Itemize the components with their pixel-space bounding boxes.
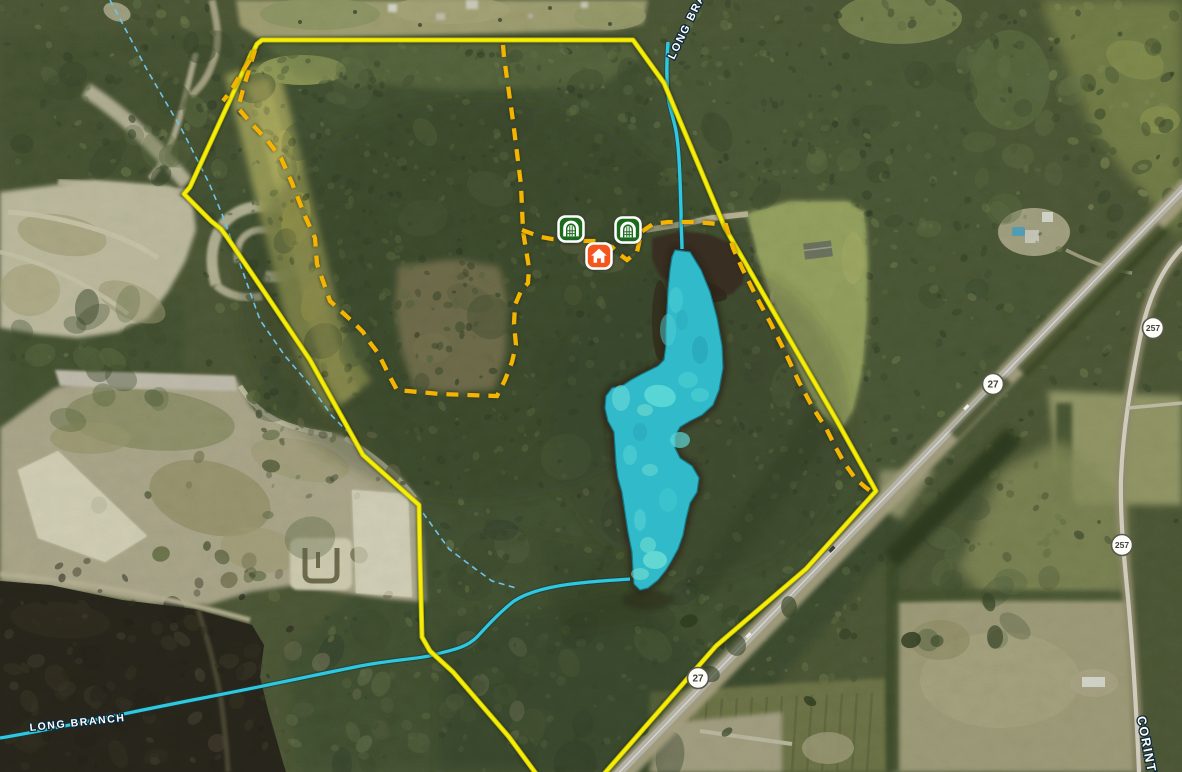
svg-text:257: 257 — [1115, 540, 1129, 550]
svg-text:27: 27 — [692, 674, 704, 685]
svg-text:27: 27 — [987, 380, 999, 391]
svg-text:257: 257 — [1146, 323, 1160, 333]
